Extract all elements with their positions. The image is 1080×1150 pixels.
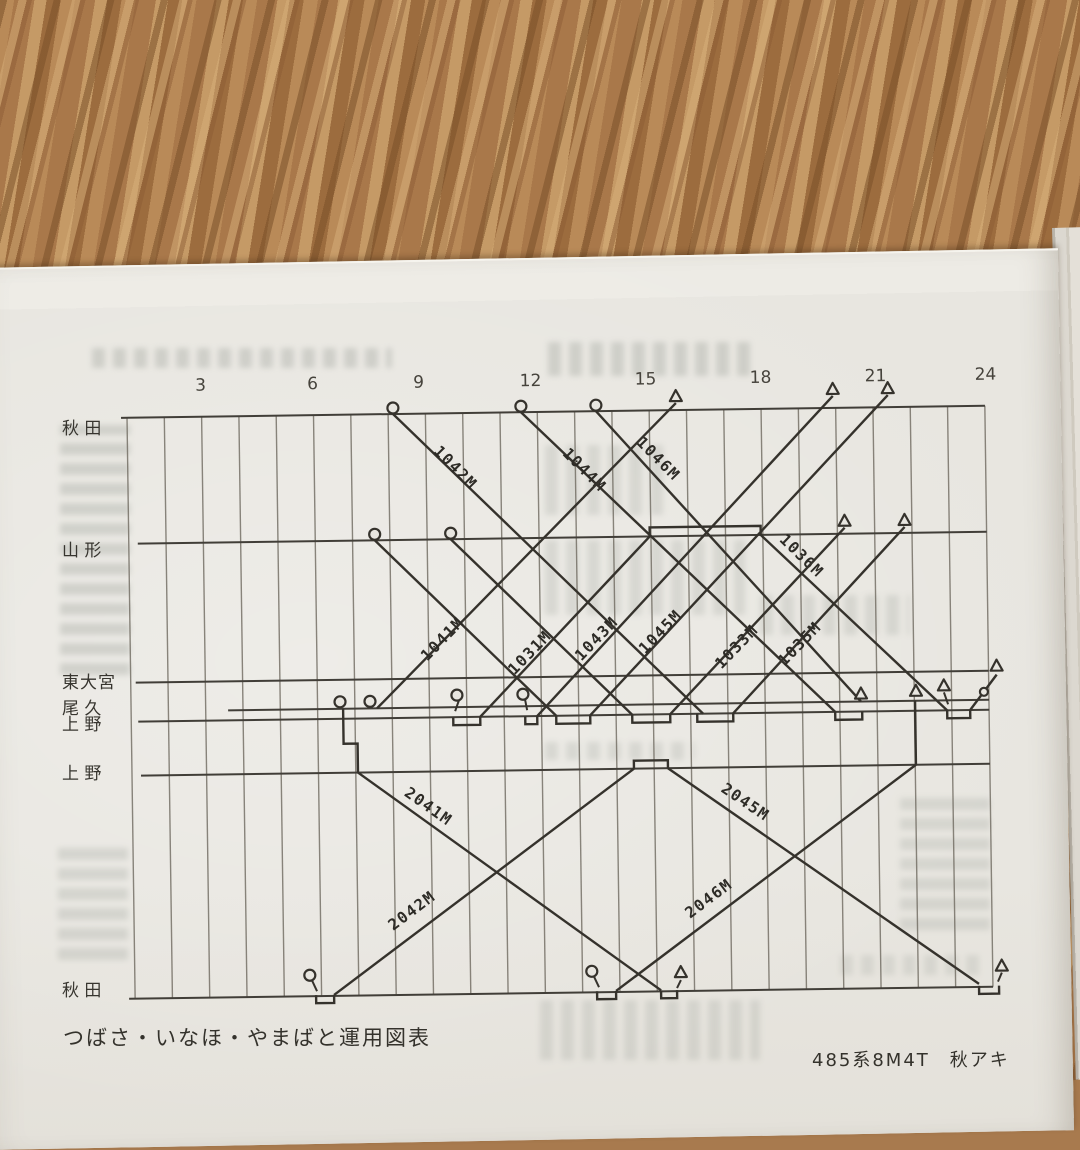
departure-circle-marker bbox=[590, 400, 601, 411]
departure-circle-marker bbox=[517, 689, 528, 700]
station-label: 東大宮 bbox=[62, 668, 124, 693]
station-line bbox=[141, 764, 990, 776]
train-number-label: 1041M bbox=[417, 613, 468, 664]
arrival-triangle-marker bbox=[855, 687, 867, 698]
hour-gridline bbox=[276, 416, 284, 997]
hour-label: 6 bbox=[307, 374, 318, 394]
hour-gridline bbox=[649, 410, 657, 991]
departure-circle-marker bbox=[334, 696, 345, 707]
arrival-triangle-marker bbox=[898, 514, 910, 525]
marker-stem bbox=[455, 700, 459, 711]
departure-circle-marker bbox=[387, 402, 398, 413]
departure-circle-marker bbox=[586, 966, 597, 977]
hour-gridline bbox=[351, 415, 359, 996]
station-line bbox=[138, 532, 987, 544]
hour-gridline bbox=[761, 409, 769, 990]
train-number-label: 1043M bbox=[571, 613, 622, 664]
hour-label: 21 bbox=[865, 366, 887, 386]
train-line bbox=[331, 769, 637, 995]
train-number-label: 1045M bbox=[635, 606, 686, 657]
hour-gridline bbox=[388, 414, 396, 995]
arrival-triangle-marker bbox=[938, 679, 950, 690]
departure-circle-marker bbox=[364, 696, 375, 707]
station-line bbox=[136, 671, 989, 683]
hour-gridline bbox=[463, 413, 471, 994]
departure-circle-marker bbox=[515, 401, 526, 412]
train-number-label: 1042M bbox=[430, 442, 481, 493]
hour-gridline bbox=[948, 406, 956, 987]
diagram-caption: つばさ・いなほ・やまばと運用図表 bbox=[63, 1022, 431, 1052]
train-number-label: 2045M bbox=[718, 779, 773, 824]
hour-label: 24 bbox=[975, 365, 997, 385]
hour-label: 15 bbox=[635, 369, 657, 389]
photo-of-book-page: { "page": { "caption_left": "つばさ・いなほ・やまば… bbox=[0, 0, 1080, 1080]
hour-label: 18 bbox=[750, 368, 772, 388]
hour-gridline bbox=[202, 417, 210, 998]
marker-stem bbox=[312, 980, 317, 991]
station-label: 秋 田 bbox=[62, 414, 124, 439]
marker-stem bbox=[594, 976, 599, 987]
station-line bbox=[121, 406, 985, 418]
marker-stem bbox=[677, 980, 681, 988]
train-number-label: 1035M bbox=[774, 618, 825, 669]
departure-circle-marker bbox=[451, 690, 462, 701]
hour-gridline bbox=[127, 418, 135, 999]
departure-circle-marker bbox=[445, 528, 456, 539]
train-number-label: 1033M bbox=[711, 621, 762, 672]
arrival-triangle-marker bbox=[670, 390, 682, 401]
layover-notch bbox=[525, 716, 537, 724]
arrival-triangle-marker bbox=[996, 959, 1008, 970]
train-number-label: 1031M bbox=[504, 627, 555, 678]
hour-gridline bbox=[836, 408, 844, 989]
train-line bbox=[915, 701, 916, 765]
train-operation-diagram: 36912151821241042M1044M1046M1036M1041M10… bbox=[0, 0, 1080, 1080]
station-label: 山 形 bbox=[62, 536, 124, 561]
departure-circle-marker bbox=[304, 970, 315, 981]
departure-circle-marker bbox=[980, 688, 988, 696]
arrival-triangle-marker bbox=[838, 515, 850, 526]
train-line bbox=[668, 764, 979, 988]
hour-gridline bbox=[910, 407, 918, 988]
marker-stem bbox=[944, 692, 948, 704]
arrival-triangle-marker bbox=[675, 966, 687, 977]
hour-label: 9 bbox=[413, 373, 424, 393]
station-label: 秋 田 bbox=[62, 976, 124, 1001]
train-line bbox=[358, 768, 661, 994]
train-number-label: 1044M bbox=[559, 444, 610, 495]
hour-label: 12 bbox=[520, 371, 542, 391]
hour-label: 3 bbox=[195, 376, 206, 396]
arrival-triangle-marker bbox=[827, 383, 839, 394]
station-label: 上 野 bbox=[62, 710, 124, 735]
train-number-label: 2046M bbox=[682, 875, 736, 922]
hour-gridline bbox=[798, 408, 806, 989]
hour-gridline bbox=[314, 415, 322, 996]
hour-gridline bbox=[873, 407, 881, 988]
hour-gridline bbox=[500, 413, 508, 994]
hour-gridline bbox=[164, 417, 172, 998]
train-number-label: 2042M bbox=[385, 887, 439, 934]
station-label: 上 野 bbox=[62, 759, 124, 784]
station-line bbox=[129, 987, 993, 999]
rolling-stock-caption: 485系8M4T 秋アキ bbox=[812, 1046, 1010, 1072]
marker-stem bbox=[525, 699, 527, 710]
arrival-triangle-marker bbox=[990, 660, 1002, 671]
departure-circle-marker bbox=[369, 529, 380, 540]
hour-gridline bbox=[239, 416, 247, 997]
marker-stem bbox=[998, 973, 1002, 982]
